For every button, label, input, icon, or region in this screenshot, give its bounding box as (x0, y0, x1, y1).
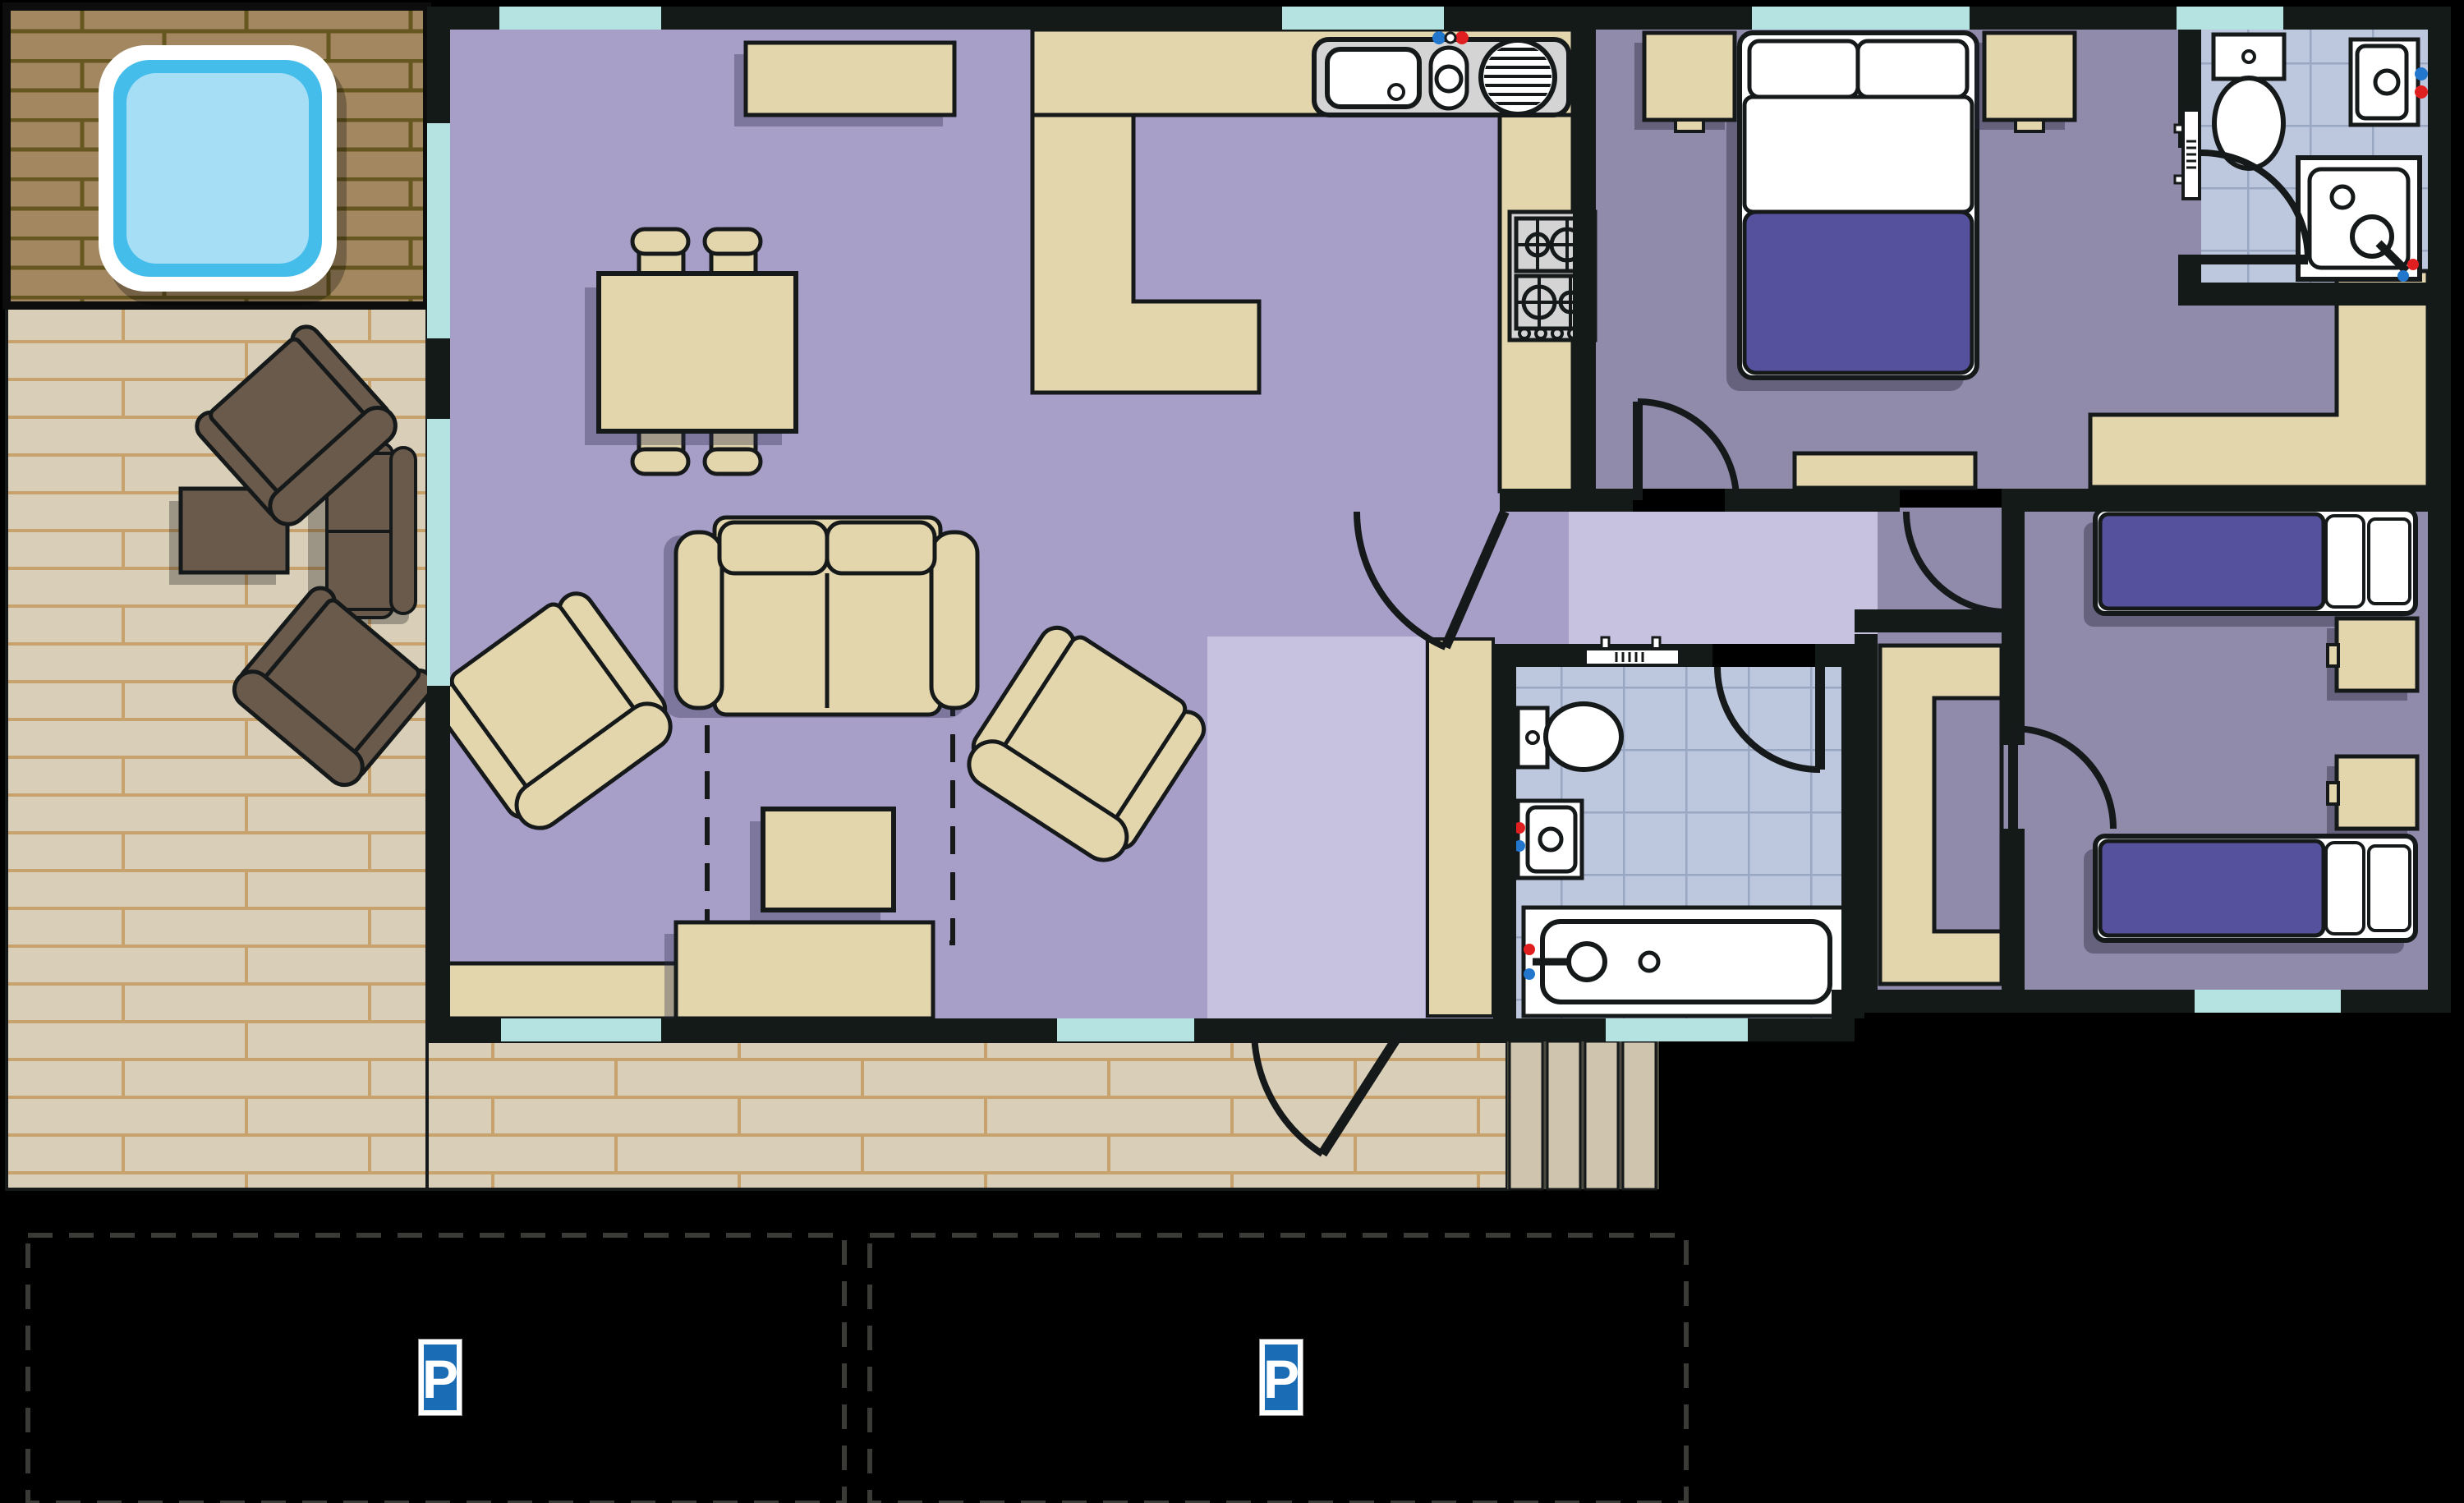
dining-table (599, 273, 796, 431)
window (499, 7, 661, 30)
pillow (2326, 516, 2364, 607)
ensuite-toilet (2213, 34, 2284, 168)
duvet (1745, 212, 1972, 373)
parking-sign-label: P (422, 1349, 458, 1409)
double-bed (1740, 33, 1977, 378)
coffee-table (763, 809, 894, 910)
sink-drain-icon (1389, 85, 1404, 99)
entrance-steps (1507, 1041, 1659, 1189)
window (427, 419, 450, 686)
ensuite-sink (2351, 39, 2428, 125)
twin-nightstand-bottom (2328, 756, 2417, 829)
bath-drain-icon (1640, 953, 1658, 971)
bedroom-sideboard (1795, 453, 1975, 488)
window (2177, 7, 2283, 30)
cold-tap-icon (1432, 31, 1446, 44)
single-bed-bottom (2095, 836, 2416, 940)
window (2195, 990, 2341, 1013)
floor-plan-canvas: P P (0, 0, 2464, 1503)
entrance-hall-floor (1207, 637, 1425, 1018)
kitchen-sink (1314, 31, 1569, 115)
parking-area: P P (28, 1235, 1686, 1503)
parking-sign-1: P (418, 1339, 462, 1416)
hot-tub (99, 45, 347, 306)
floor-plan-page: P P (0, 0, 2464, 1503)
cold-tap-icon (2415, 67, 2428, 80)
duvet (2100, 841, 2324, 935)
shower-drain-icon (2332, 186, 2353, 208)
bathroom-sink (1514, 801, 1582, 878)
hot-tub-patio (7, 7, 427, 306)
hot-tap-icon (2415, 85, 2428, 99)
single-bed-top (2095, 509, 2416, 614)
nightstand-left (1644, 33, 1735, 131)
twin-nightstand-top (2328, 618, 2417, 691)
built-in-wardrobe (1880, 646, 2002, 984)
sideboard-bottom-right (676, 922, 933, 1018)
parking-sign-label: P (1263, 1349, 1299, 1409)
sideboard-bottom-left (440, 963, 676, 1018)
ensuite-shower (2298, 158, 2420, 282)
window (1752, 7, 1970, 30)
window (1282, 7, 1444, 30)
bathtub (1524, 908, 1848, 1016)
pillow (2326, 843, 2364, 934)
toilet (1518, 704, 1621, 770)
sofa (676, 517, 977, 715)
bath-faucet-icon (1569, 944, 1605, 980)
nightstand-right (1984, 33, 2075, 131)
entrance-cupboard (1427, 639, 1493, 1016)
window (1606, 1018, 1748, 1041)
sink-faucet-icon (1437, 67, 1461, 91)
sideboard-top (746, 43, 954, 115)
parking-sign-2: P (1259, 1339, 1303, 1416)
hot-tap-icon (2407, 259, 2419, 270)
pillow (1858, 41, 1967, 97)
hot-tap-icon (1524, 944, 1535, 955)
duvet (2100, 514, 2324, 609)
pillow (1749, 41, 1858, 97)
window (427, 123, 450, 338)
hot-tap-icon (1455, 31, 1469, 44)
window (501, 1018, 661, 1041)
cold-tap-icon (2397, 270, 2409, 282)
cold-tap-icon (1524, 968, 1535, 980)
window (1057, 1018, 1194, 1041)
